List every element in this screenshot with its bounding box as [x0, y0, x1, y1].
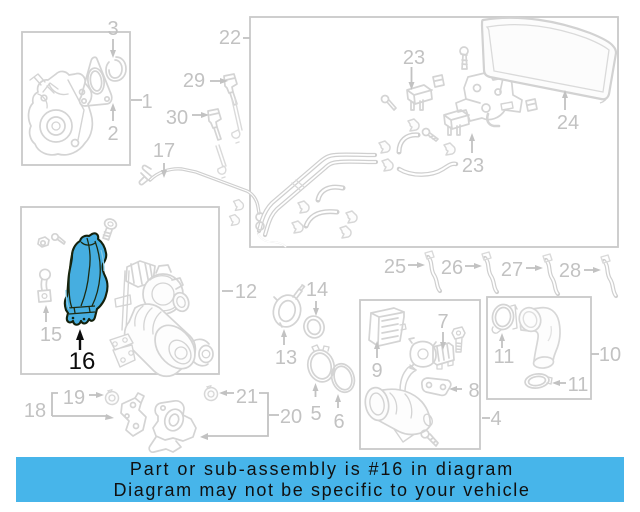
- svg-text:20: 20: [280, 406, 302, 428]
- svg-text:11: 11: [568, 374, 589, 396]
- svg-text:25: 25: [384, 256, 406, 278]
- svg-text:11: 11: [494, 346, 515, 368]
- svg-text:21: 21: [236, 386, 258, 408]
- svg-text:8: 8: [468, 380, 479, 402]
- svg-text:17: 17: [153, 140, 175, 162]
- svg-text:18: 18: [24, 400, 46, 422]
- svg-text:15: 15: [40, 324, 62, 346]
- svg-text:12: 12: [235, 281, 257, 303]
- svg-text:3: 3: [107, 18, 118, 40]
- svg-text:Diagram may not be specific to: Diagram may not be specific to your vehi…: [114, 480, 531, 500]
- svg-text:16: 16: [69, 348, 96, 375]
- svg-text:14: 14: [306, 279, 328, 301]
- svg-text:5: 5: [310, 403, 321, 425]
- svg-text:7: 7: [437, 311, 448, 333]
- svg-text:10: 10: [599, 344, 621, 366]
- svg-text:6: 6: [333, 411, 344, 433]
- svg-text:23: 23: [403, 47, 425, 69]
- svg-text:Part or sub-assembly is #16 in: Part or sub-assembly is #16 in diagram: [130, 459, 514, 479]
- svg-text:27: 27: [501, 259, 523, 281]
- svg-text:30: 30: [166, 107, 188, 129]
- svg-text:26: 26: [441, 257, 463, 279]
- svg-text:23: 23: [462, 155, 484, 177]
- svg-text:1: 1: [141, 91, 152, 113]
- svg-text:4: 4: [490, 408, 501, 430]
- svg-text:22: 22: [219, 27, 241, 49]
- svg-text:28: 28: [559, 260, 581, 282]
- svg-text:2: 2: [107, 123, 118, 145]
- svg-text:13: 13: [275, 347, 297, 369]
- svg-text:29: 29: [183, 70, 205, 92]
- svg-text:19: 19: [63, 387, 85, 409]
- svg-text:9: 9: [371, 360, 382, 382]
- svg-text:24: 24: [557, 112, 579, 134]
